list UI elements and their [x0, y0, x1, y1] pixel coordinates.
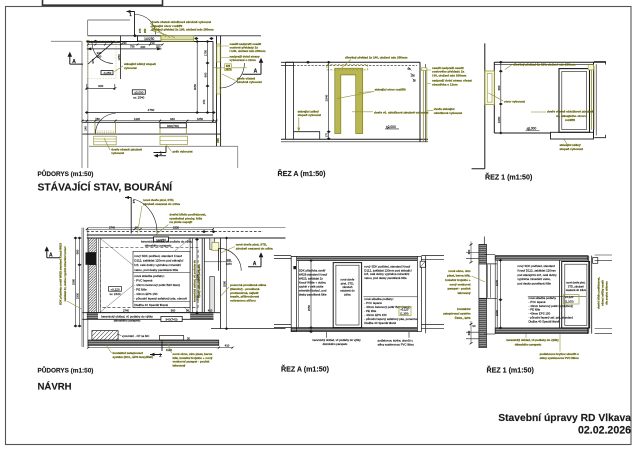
svg-text:ŘEZ 1 (m1:50): ŘEZ 1 (m1:50): [487, 366, 535, 375]
svg-text:obezdívka o 12cm: obezdívka o 12cm: [432, 82, 458, 86]
svg-text:2550: 2550: [307, 304, 311, 311]
svg-text:+0,120: +0,120: [565, 295, 574, 299]
svg-text:systém (SCL, EPS GreyWall): systém (SCL, EPS GreyWall): [113, 355, 154, 359]
svg-text:3280: 3280: [72, 278, 76, 285]
svg-text:980: 980: [76, 249, 80, 254]
svg-text:vyplněna minerální vatou,: vyplněna minerální vatou,: [517, 277, 551, 281]
svg-text:plast, barva bílá,: plast, barva bílá,: [447, 274, 471, 278]
svg-text:940(740): 940(740): [165, 318, 177, 322]
svg-text:1250: 1250: [117, 54, 121, 61]
svg-text:975: 975: [138, 28, 142, 33]
svg-text:410: 410: [225, 343, 230, 347]
svg-text:dřevěný překlad 2x 190, uložen: dřevěný překlad 2x 190, uložení min 250m…: [151, 28, 214, 32]
svg-text:nový SDK podhled, standard: nový SDK podhled, standard: [517, 264, 555, 268]
svg-text:vybourat: vybourat: [111, 151, 124, 155]
svg-text:vybourat: vybourat: [124, 66, 137, 70]
svg-text:1750: 1750: [203, 49, 207, 56]
svg-text:600: 600: [467, 249, 471, 254]
svg-text:na ploše napojit: na ploše napojit: [169, 220, 192, 224]
svg-text:rozšířit: rozšířit: [565, 118, 575, 122]
svg-text:vatou, pod desky parotěsná fól: vatou, pod desky parotěsná fólie: [364, 276, 407, 280]
svg-text:nové okno, rám: nové okno, rám: [448, 269, 471, 273]
svg-text:stěny systémovou PVC lištou: stěny systémovou PVC lištou: [378, 343, 415, 347]
svg-text:zdiva: zdiva: [344, 292, 351, 296]
svg-text:ochrannou síťkou: ochrannou síťkou: [230, 298, 256, 302]
svg-text:stávající otvor rozšířit: stávající otvor rozšířit: [375, 88, 406, 92]
svg-text:+0,120: +0,120: [400, 307, 409, 311]
svg-text:900: 900: [98, 84, 103, 88]
svg-text:1500: 1500: [495, 309, 499, 316]
svg-text:-0,250: -0,250: [103, 71, 112, 75]
svg-text:2740: 2740: [123, 308, 129, 312]
svg-text:140: 140: [84, 126, 88, 131]
svg-text:1650: 1650: [197, 117, 204, 121]
svg-text:desky parotěsná fólie: desky parotěsná fólie: [299, 293, 327, 297]
svg-text:dámského parapetu: dámského parapetu: [114, 319, 141, 323]
svg-text:dámského parapetu: dámského parapetu: [515, 342, 542, 346]
svg-text:dámského parapetu: dámského parapetu: [323, 342, 348, 346]
svg-text:1970: 1970: [495, 279, 499, 286]
svg-text:izolační trojsklo +: izolační trojsklo +: [445, 278, 471, 282]
svg-text:lakovaný: lakovaný: [173, 363, 186, 367]
svg-text:1: 1: [129, 12, 132, 17]
svg-text:stupeň vybourat: stupeň vybourat: [560, 147, 583, 151]
svg-text:(1,100): (1,100): [400, 311, 408, 315]
svg-text:parapet - pozink: parapet - pozink: [447, 287, 470, 291]
svg-text:3050: 3050: [193, 83, 197, 90]
svg-text:zakládat 2x, dutinu vyplnit mi: zakládat 2x, dutinu vyplnit minerální iz…: [63, 246, 67, 301]
svg-text:pod stávajícím krč, celé dutin: pod stávajícím krč, celé dutiny: [517, 273, 557, 277]
svg-text:1970: 1970: [226, 262, 232, 266]
svg-text:ŘEZ A (m1:50): ŘEZ A (m1:50): [278, 169, 327, 178]
svg-text:ŘEZ 1 (m1:50): ŘEZ 1 (m1:50): [485, 173, 533, 182]
svg-text:1: 1: [159, 352, 162, 357]
svg-text:970: 970: [91, 58, 95, 63]
svg-text:1: 1: [160, 151, 163, 156]
svg-text:±0,000: ±0,000: [527, 127, 537, 131]
svg-text:756: 756: [130, 45, 135, 49]
svg-text:- původní lepený asfaltový pás: - původní lepený asfaltový pás, obnovit: [134, 296, 187, 300]
svg-text:2550: 2550: [196, 273, 200, 280]
svg-text:dveřní křídlo podfrézovat,: dveřní křídlo podfrézovat,: [597, 277, 601, 309]
svg-text:780: 780: [95, 117, 100, 121]
svg-text:- PVC lepené: - PVC lepené: [134, 278, 152, 282]
svg-text:960: 960: [203, 72, 207, 77]
svg-text:150: 150: [411, 74, 416, 78]
svg-text:dřevěný překlad 2x 140, uložen: dřevěný překlad 2x 140, uložení min 250m…: [345, 56, 408, 60]
svg-text:krč, celé dutiny vyplněna mine: krč, celé dutiny vyplněna minerální: [134, 263, 181, 267]
svg-text:1970: 1970: [225, 68, 231, 71]
svg-text:Stavební úpravy RD Vlkava: Stavební úpravy RD Vlkava: [498, 413, 631, 424]
svg-text:90: 90: [186, 308, 189, 312]
svg-text:2540: 2540: [325, 94, 329, 101]
svg-text:02.02.2026: 02.02.2026: [578, 425, 631, 437]
svg-text:Dlažba 40 Speciál těsně: Dlažba 40 Speciál těsně: [529, 319, 560, 323]
svg-text:nový venkovní: nový venkovní: [450, 282, 471, 286]
svg-text:vatou, pod desky parotěsná fól: vatou, pod desky parotěsná fólie: [134, 268, 178, 272]
svg-text:400: 400: [140, 45, 145, 49]
svg-text:Dlažba 40 Speciál fiberal: Dlažba 40 Speciál fiberal: [134, 303, 168, 307]
svg-text:dle popisu výkresu: dle popisu výkresu: [605, 281, 609, 305]
svg-text:vybourané o 12cm: vybourané o 12cm: [230, 58, 257, 62]
svg-text:otvor vybourat: otvor vybourat: [504, 100, 525, 104]
svg-text:zárubně vybourat: zárubně vybourat: [237, 80, 262, 84]
svg-text:410: 410: [208, 308, 213, 312]
svg-text:950: 950: [143, 28, 147, 33]
svg-text:1420: 1420: [134, 117, 141, 121]
svg-text:940(740): 940(740): [167, 124, 179, 128]
svg-text:A: A: [254, 69, 258, 75]
svg-text:600: 600: [467, 330, 471, 335]
svg-text:práh vybourat: práh vybourat: [173, 150, 193, 154]
svg-text:2300: 2300: [76, 292, 80, 299]
svg-text:lakovaný: lakovaný: [458, 291, 471, 295]
svg-text:960: 960: [171, 308, 176, 312]
svg-text:osazená do zdiva: osazená do zdiva: [566, 288, 587, 292]
svg-text:+0,120: +0,120: [110, 287, 120, 291]
svg-text:dveře vč. obložkové zárubně vy: dveře vč. obložkové zárubně vybourat: [374, 110, 428, 114]
svg-text:nový SDK podhled, standard Kna: nový SDK podhled, standard Knauf: [134, 254, 182, 258]
svg-text:3280: 3280: [223, 280, 227, 287]
svg-text:230: 230: [122, 41, 127, 45]
svg-text:stěny systémovou PVC lištou: stěny systémovou PVC lištou: [540, 356, 579, 360]
svg-text:200: 200: [97, 55, 102, 59]
svg-text:900: 900: [227, 258, 232, 262]
svg-text:940: 940: [170, 117, 175, 121]
svg-text:- PE fólie: - PE fólie: [134, 287, 147, 291]
svg-text:stupeň vybourat: stupeň vybourat: [298, 113, 321, 117]
svg-text:kontaktní: kontaktní: [457, 307, 471, 311]
svg-text:Knauf D112, zakládat 120mm: Knauf D112, zakládat 120mm: [517, 268, 556, 272]
svg-text:A: A: [253, 261, 257, 267]
svg-text:A: A: [49, 253, 53, 259]
svg-text:1A/250: 1A/250: [144, 37, 154, 41]
svg-text:dřevěný překlad 2x 190, uložen: dřevěný překlad 2x 190, uložení min 200m…: [513, 63, 576, 67]
svg-text:710: 710: [150, 41, 155, 45]
svg-text:nové dveře plné,: nové dveře plné,: [566, 281, 585, 285]
svg-text:vyrovnání - CP na MC: vyrovnání - CP na MC: [122, 334, 149, 338]
svg-text:nová skladba podlahy:: nová skladba podlahy:: [134, 274, 164, 278]
svg-text:1060: 1060: [497, 116, 501, 123]
svg-text:ČSCL, EPS: ČSCL, EPS: [455, 315, 471, 320]
svg-text:150: 150: [202, 99, 206, 104]
svg-text:zateplovací systém: zateplovací systém: [443, 312, 471, 316]
svg-text:sv. 2540: sv. 2540: [133, 96, 144, 100]
svg-text:250: 250: [196, 295, 200, 300]
svg-text:2740: 2740: [109, 226, 115, 230]
svg-text:větrací mřížky osadit: větrací mřížky osadit: [601, 280, 605, 306]
svg-text:4760: 4760: [148, 108, 155, 112]
svg-text:obložkové vybourat: obložkové vybourat: [434, 111, 462, 115]
svg-text:ŘEZ A (m1:50): ŘEZ A (m1:50): [281, 365, 330, 374]
svg-text:sv. 2420: sv. 2420: [109, 292, 120, 296]
svg-text:175: 175: [325, 132, 329, 137]
svg-text:960: 960: [497, 85, 501, 90]
svg-text:I 140, uložení min 200mm: I 140, uložení min 200mm: [230, 49, 266, 53]
svg-text:1: 1: [133, 199, 136, 204]
svg-text:- 40mm EPS 150: - 40mm EPS 150: [134, 292, 158, 296]
svg-text:dámského parapetu: dámského parapetu: [145, 243, 172, 247]
svg-text:±0,000: ±0,000: [134, 90, 143, 94]
svg-text:Dlažba 40 Speciál těsně: Dlažba 40 Speciál těsně: [364, 321, 396, 325]
svg-text:zárubeň osazená do zdiva: zárubeň osazená do zdiva: [236, 247, 273, 251]
svg-text:STÁVAJÍCÍ STAV, BOURÁNÍ: STÁVAJÍCÍ STAV, BOURÁNÍ: [38, 181, 174, 194]
svg-text:pod desky parotěsná fólie: pod desky parotěsná fólie: [517, 282, 551, 286]
svg-text:1530: 1530: [173, 226, 179, 230]
svg-text:D112, zakládat 120mm pod stáva: D112, zakládat 120mm pod stávající: [134, 259, 183, 263]
svg-text:- 40mm betonový potěr B20 tkan: - 40mm betonový potěr B20 tkaný: [134, 283, 180, 287]
svg-text:I 90, uložení min 200mm: I 90, uložení min 200mm: [432, 73, 467, 77]
svg-text:(1,100): (1,100): [565, 299, 574, 303]
svg-text:zárubeň osazená do zdiva: zárubeň osazená do zdiva: [143, 202, 180, 206]
svg-text:SDK přizdívka uvnitř W628 stan: SDK přizdívka uvnitř W628 standard Knauf…: [59, 242, 63, 305]
svg-text:250: 250: [216, 138, 220, 143]
svg-text:NÁVRH: NÁVRH: [38, 381, 72, 393]
svg-text:STD, zárubeň: STD, zárubeň: [568, 284, 585, 288]
svg-text:A: A: [72, 59, 76, 65]
